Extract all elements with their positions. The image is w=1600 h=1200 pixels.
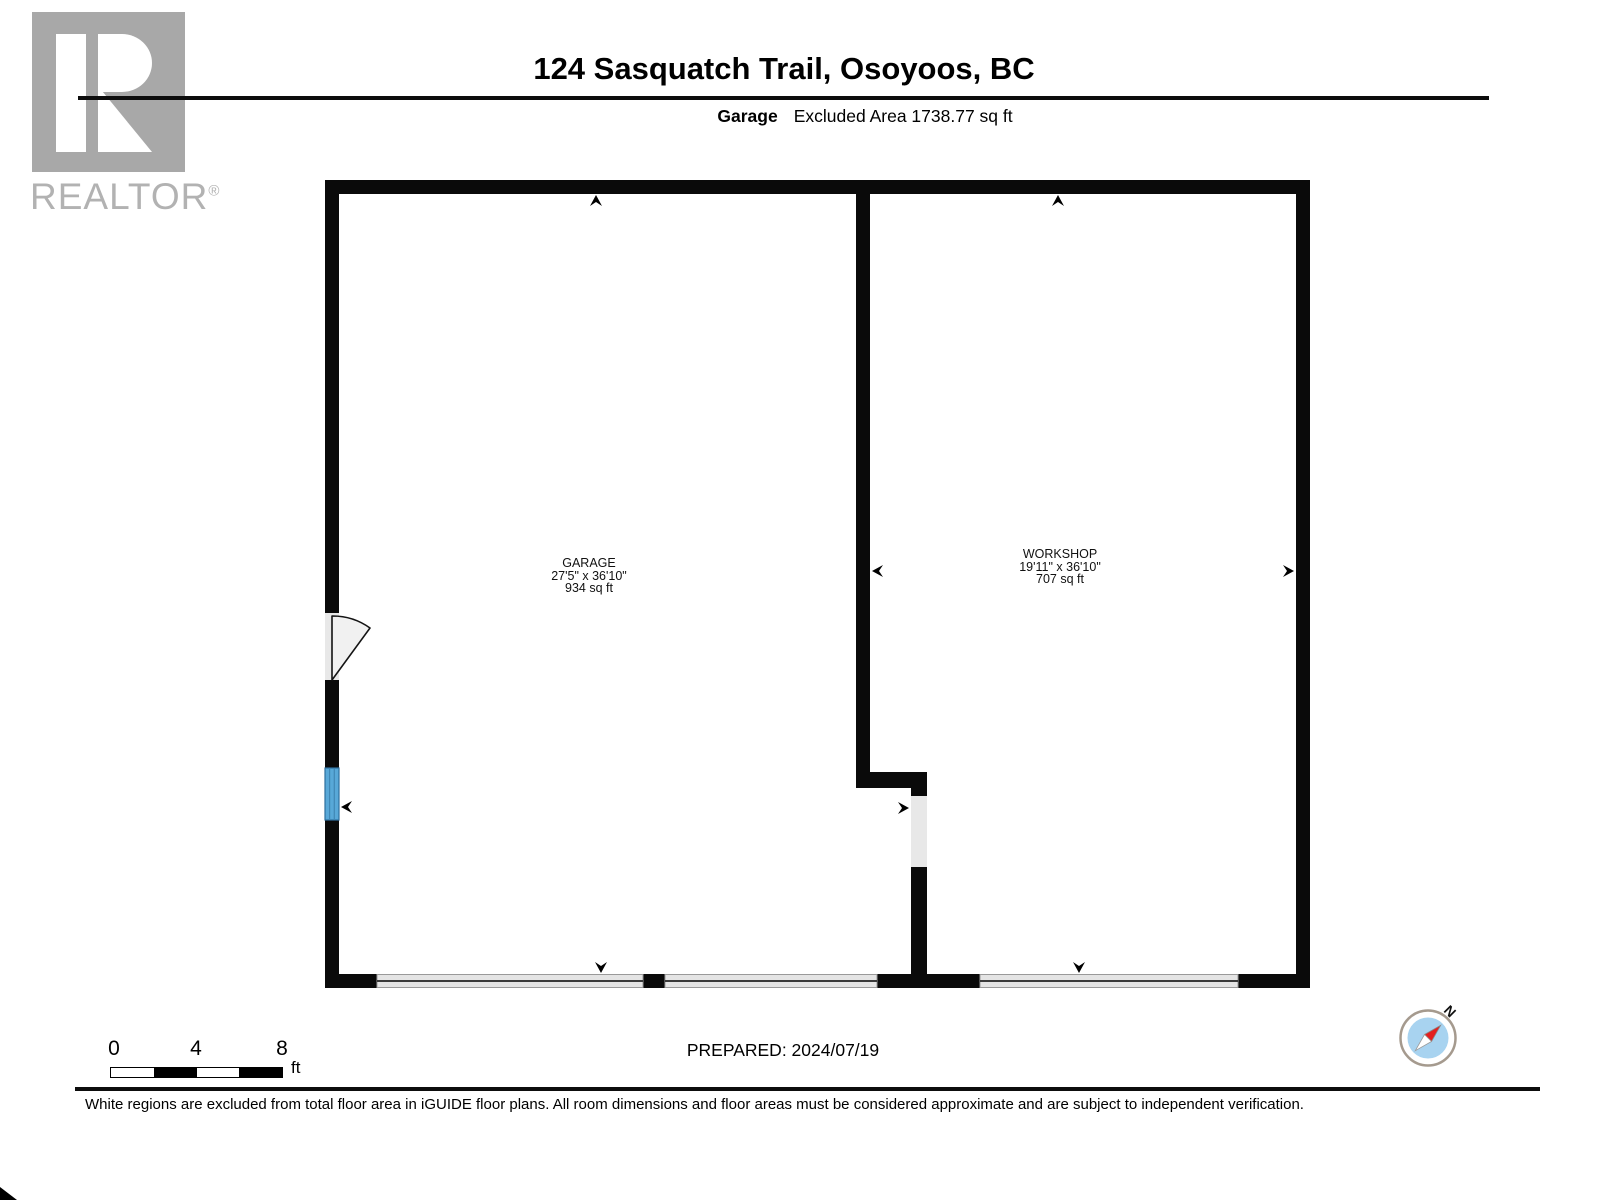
- arrow-left-middle-wall: [872, 565, 883, 577]
- prepared-date: PREPARED: 2024/07/19: [500, 1040, 1066, 1061]
- scale-unit-label: ft: [291, 1058, 300, 1078]
- arrow-up-workshop: [1052, 195, 1064, 206]
- scale-segment: [111, 1068, 154, 1077]
- scale-tick-0: 0: [99, 1037, 129, 1061]
- realtor-r-icon: [30, 10, 185, 172]
- floor-plan-drawing: [300, 170, 1330, 1000]
- scale-segment: [239, 1068, 282, 1077]
- interior-door-opening: [911, 795, 927, 867]
- scale-segment: [154, 1068, 197, 1077]
- arrow-left-window: [341, 801, 352, 813]
- registered-mark: ®: [208, 183, 220, 200]
- door-swing-arc: [332, 616, 370, 680]
- disclaimer-text: White regions are excluded from total fl…: [85, 1096, 1525, 1113]
- excluded-area-text: Excluded Area 1738.77 sq ft: [794, 106, 1013, 127]
- footer-divider: [75, 1087, 1540, 1091]
- window: [325, 768, 339, 820]
- realtor-wordmark: REALTOR®: [30, 176, 220, 218]
- room-area: 934 sq ft: [479, 582, 699, 595]
- header-divider: [78, 96, 1489, 100]
- garage-room-label: GARAGE 27'5" x 36'10" 934 sq ft: [479, 557, 699, 595]
- workshop-room-label: WORKSHOP 19'11" x 36'10" 707 sq ft: [950, 548, 1170, 586]
- room-name: GARAGE: [479, 557, 699, 570]
- room-name: WORKSHOP: [950, 548, 1170, 561]
- arrow-right-interior-door: [898, 802, 909, 814]
- compass-icon: N: [1396, 996, 1462, 1068]
- arrow-down-garage: [595, 962, 607, 973]
- realtor-watermark: REALTOR®: [30, 10, 250, 177]
- room-area: 707 sq ft: [950, 573, 1170, 586]
- corner-wedge-decoration: [0, 1187, 17, 1200]
- floor-subtitle: Garage Excluded Area 1738.77 sq ft: [465, 106, 1265, 127]
- garage-door-openings: [377, 975, 1238, 988]
- scale-bar: [110, 1067, 283, 1078]
- arrow-down-workshop: [1073, 962, 1085, 973]
- page-title: 124 Sasquatch Trail, Osoyoos, BC: [79, 51, 1489, 87]
- arrow-right-right-wall: [1283, 565, 1294, 577]
- arrow-up-garage: [590, 195, 602, 206]
- floor-name: Garage: [717, 106, 777, 127]
- scale-tick-4: 4: [181, 1037, 211, 1061]
- scale-segment: [197, 1068, 240, 1077]
- floorplan-page: REALTOR® 124 Sasquatch Trail, Osoyoos, B…: [0, 0, 1600, 1200]
